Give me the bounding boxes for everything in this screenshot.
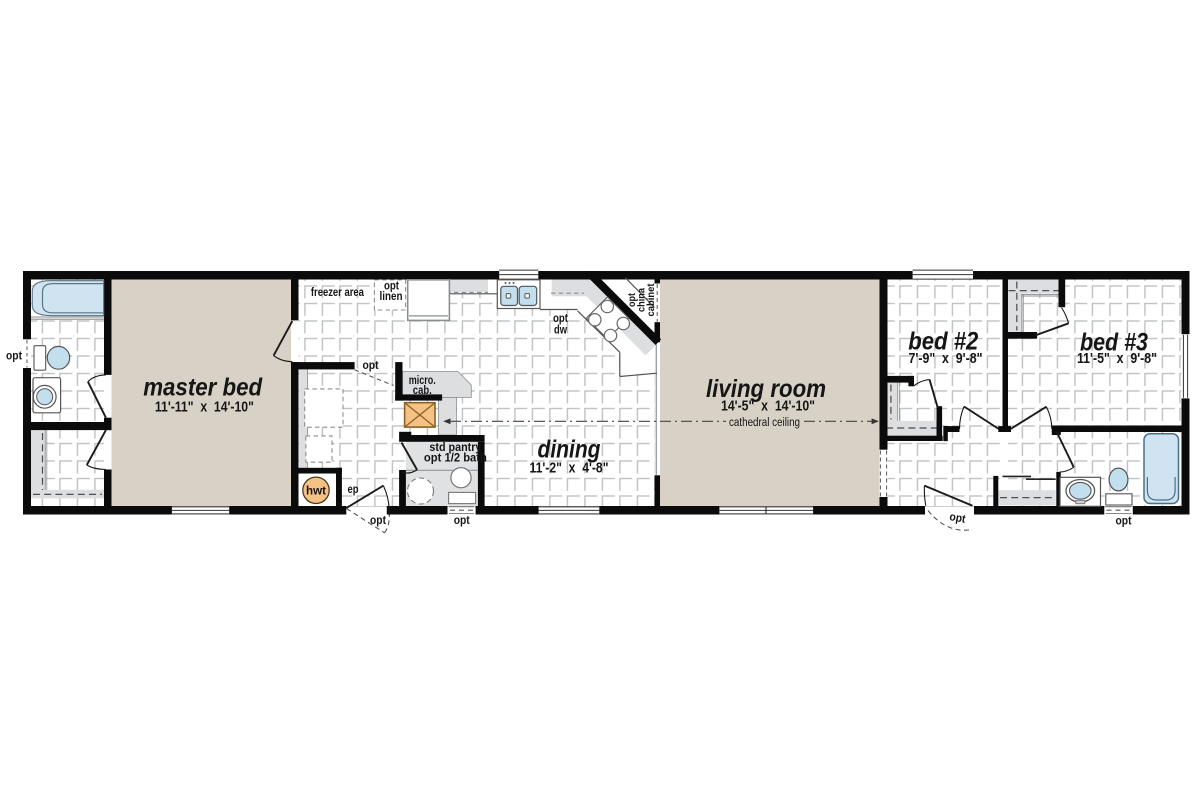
svg-text:dw: dw — [554, 325, 567, 337]
svg-text:opt 1/2 bath: opt 1/2 bath — [424, 453, 487, 465]
svg-text:master bed: master bed — [143, 374, 263, 402]
svg-text:opt: opt — [6, 351, 22, 363]
svg-text:opt: opt — [553, 313, 568, 325]
svg-text:11'-5" x 9'-8": 11'-5" x 9'-8" — [1077, 351, 1157, 367]
svg-text:opt: opt — [454, 515, 470, 527]
svg-text:dining: dining — [538, 436, 601, 464]
svg-text:opt: opt — [1116, 515, 1132, 527]
svg-text:cabinet: cabinet — [645, 283, 657, 316]
svg-text:cab.: cab. — [413, 385, 432, 397]
svg-text:linen: linen — [380, 291, 403, 303]
svg-text:11'-2" x 4'-8": 11'-2" x 4'-8" — [530, 461, 609, 477]
svg-text:opt: opt — [370, 515, 386, 527]
svg-text:opt: opt — [363, 360, 379, 372]
svg-text:cathedral ceiling: cathedral ceiling — [729, 417, 800, 429]
svg-text:ep: ep — [348, 484, 359, 496]
svg-text:hwt: hwt — [306, 485, 326, 497]
svg-text:freezer area: freezer area — [311, 287, 364, 299]
svg-text:14'-5" x 14'-10": 14'-5" x 14'-10" — [721, 399, 815, 415]
svg-text:11'-11" x 14'-10": 11'-11" x 14'-10" — [155, 399, 254, 415]
svg-text:7'-9" x 9'-8": 7'-9" x 9'-8" — [909, 351, 983, 367]
